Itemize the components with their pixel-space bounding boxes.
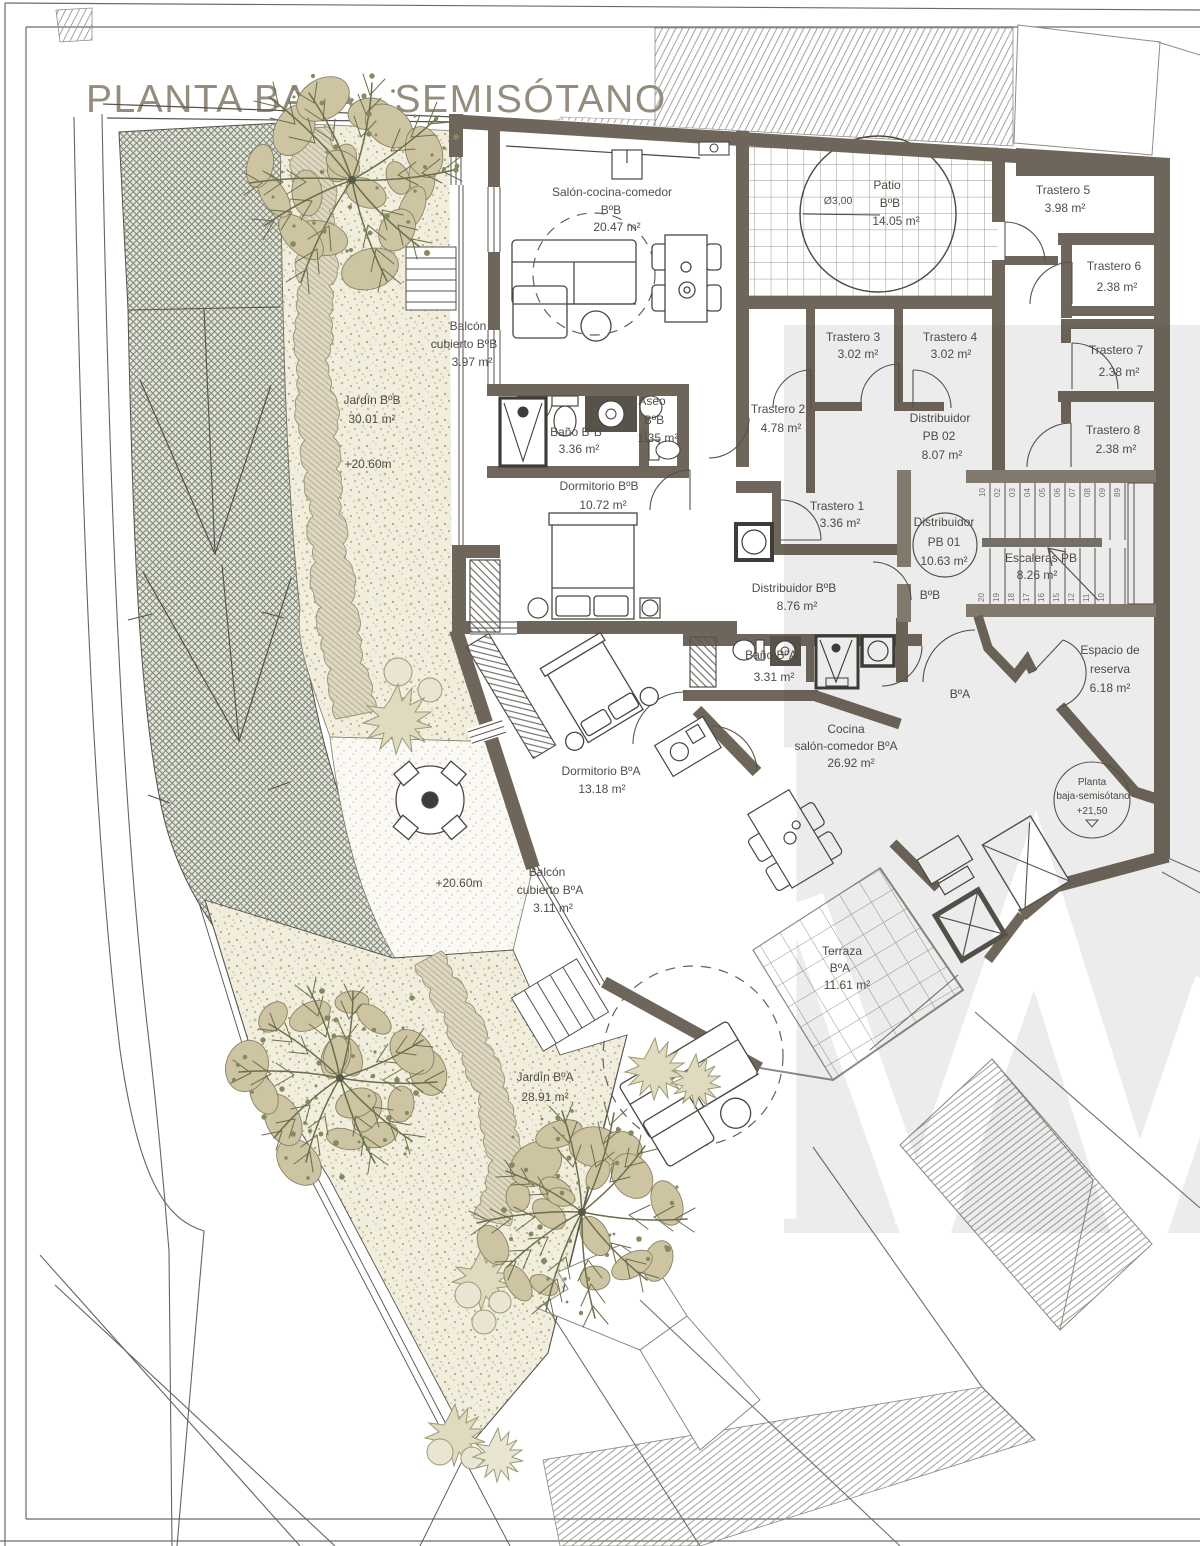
svg-text:1.35 m²: 1.35 m²: [638, 431, 679, 445]
svg-text:BºB: BºB: [880, 196, 900, 210]
svg-text:3.36 m²: 3.36 m²: [559, 442, 600, 456]
svg-text:Dormitorio BºB: Dormitorio BºB: [559, 479, 638, 493]
svg-text:10.72 m²: 10.72 m²: [579, 498, 626, 512]
svg-text:2.38 m²: 2.38 m²: [1097, 280, 1138, 294]
svg-text:3.11 m²: 3.11 m²: [533, 901, 573, 915]
svg-text:28.91 m²: 28.91 m²: [521, 1090, 568, 1104]
svg-text:cubierto BºB: cubierto BºB: [431, 337, 497, 351]
svg-text:Baño BºB: Baño BºB: [550, 425, 602, 439]
svg-text:14.05 m²: 14.05 m²: [872, 214, 919, 228]
svg-text:BºB: BºB: [601, 203, 621, 217]
svg-text:Balcón: Balcón: [529, 865, 566, 879]
svg-text:13.18 m²: 13.18 m²: [578, 782, 625, 796]
svg-text:Ø3,00: Ø3,00: [824, 195, 853, 207]
svg-text:Patio: Patio: [873, 178, 901, 192]
svg-text:Trastero 6: Trastero 6: [1087, 259, 1142, 273]
svg-text:Salón-cocina-comedor: Salón-cocina-comedor: [552, 185, 672, 199]
svg-text:3.97 m²: 3.97 m²: [452, 355, 493, 369]
svg-text:cubierto BºA: cubierto BºA: [517, 883, 583, 897]
svg-text:Dormitorio BºA: Dormitorio BºA: [561, 764, 640, 778]
svg-text:20.47 m²: 20.47 m²: [593, 220, 640, 234]
svg-text:+20.60m: +20.60m: [344, 457, 391, 471]
svg-text:3.98 m²: 3.98 m²: [1045, 201, 1086, 215]
svg-text:30.01 m²: 30.01 m²: [348, 412, 395, 426]
svg-text:Balcón: Balcón: [450, 319, 487, 333]
svg-text:Aseo: Aseo: [638, 394, 666, 408]
svg-text:+20.60m: +20.60m: [435, 876, 482, 890]
svg-text:Jardín BºA: Jardín BºA: [516, 1070, 573, 1084]
svg-text:Jardín BºB: Jardín BºB: [343, 393, 400, 407]
svg-text:Trastero 5: Trastero 5: [1036, 183, 1091, 197]
svg-text:BºB: BºB: [644, 413, 664, 427]
